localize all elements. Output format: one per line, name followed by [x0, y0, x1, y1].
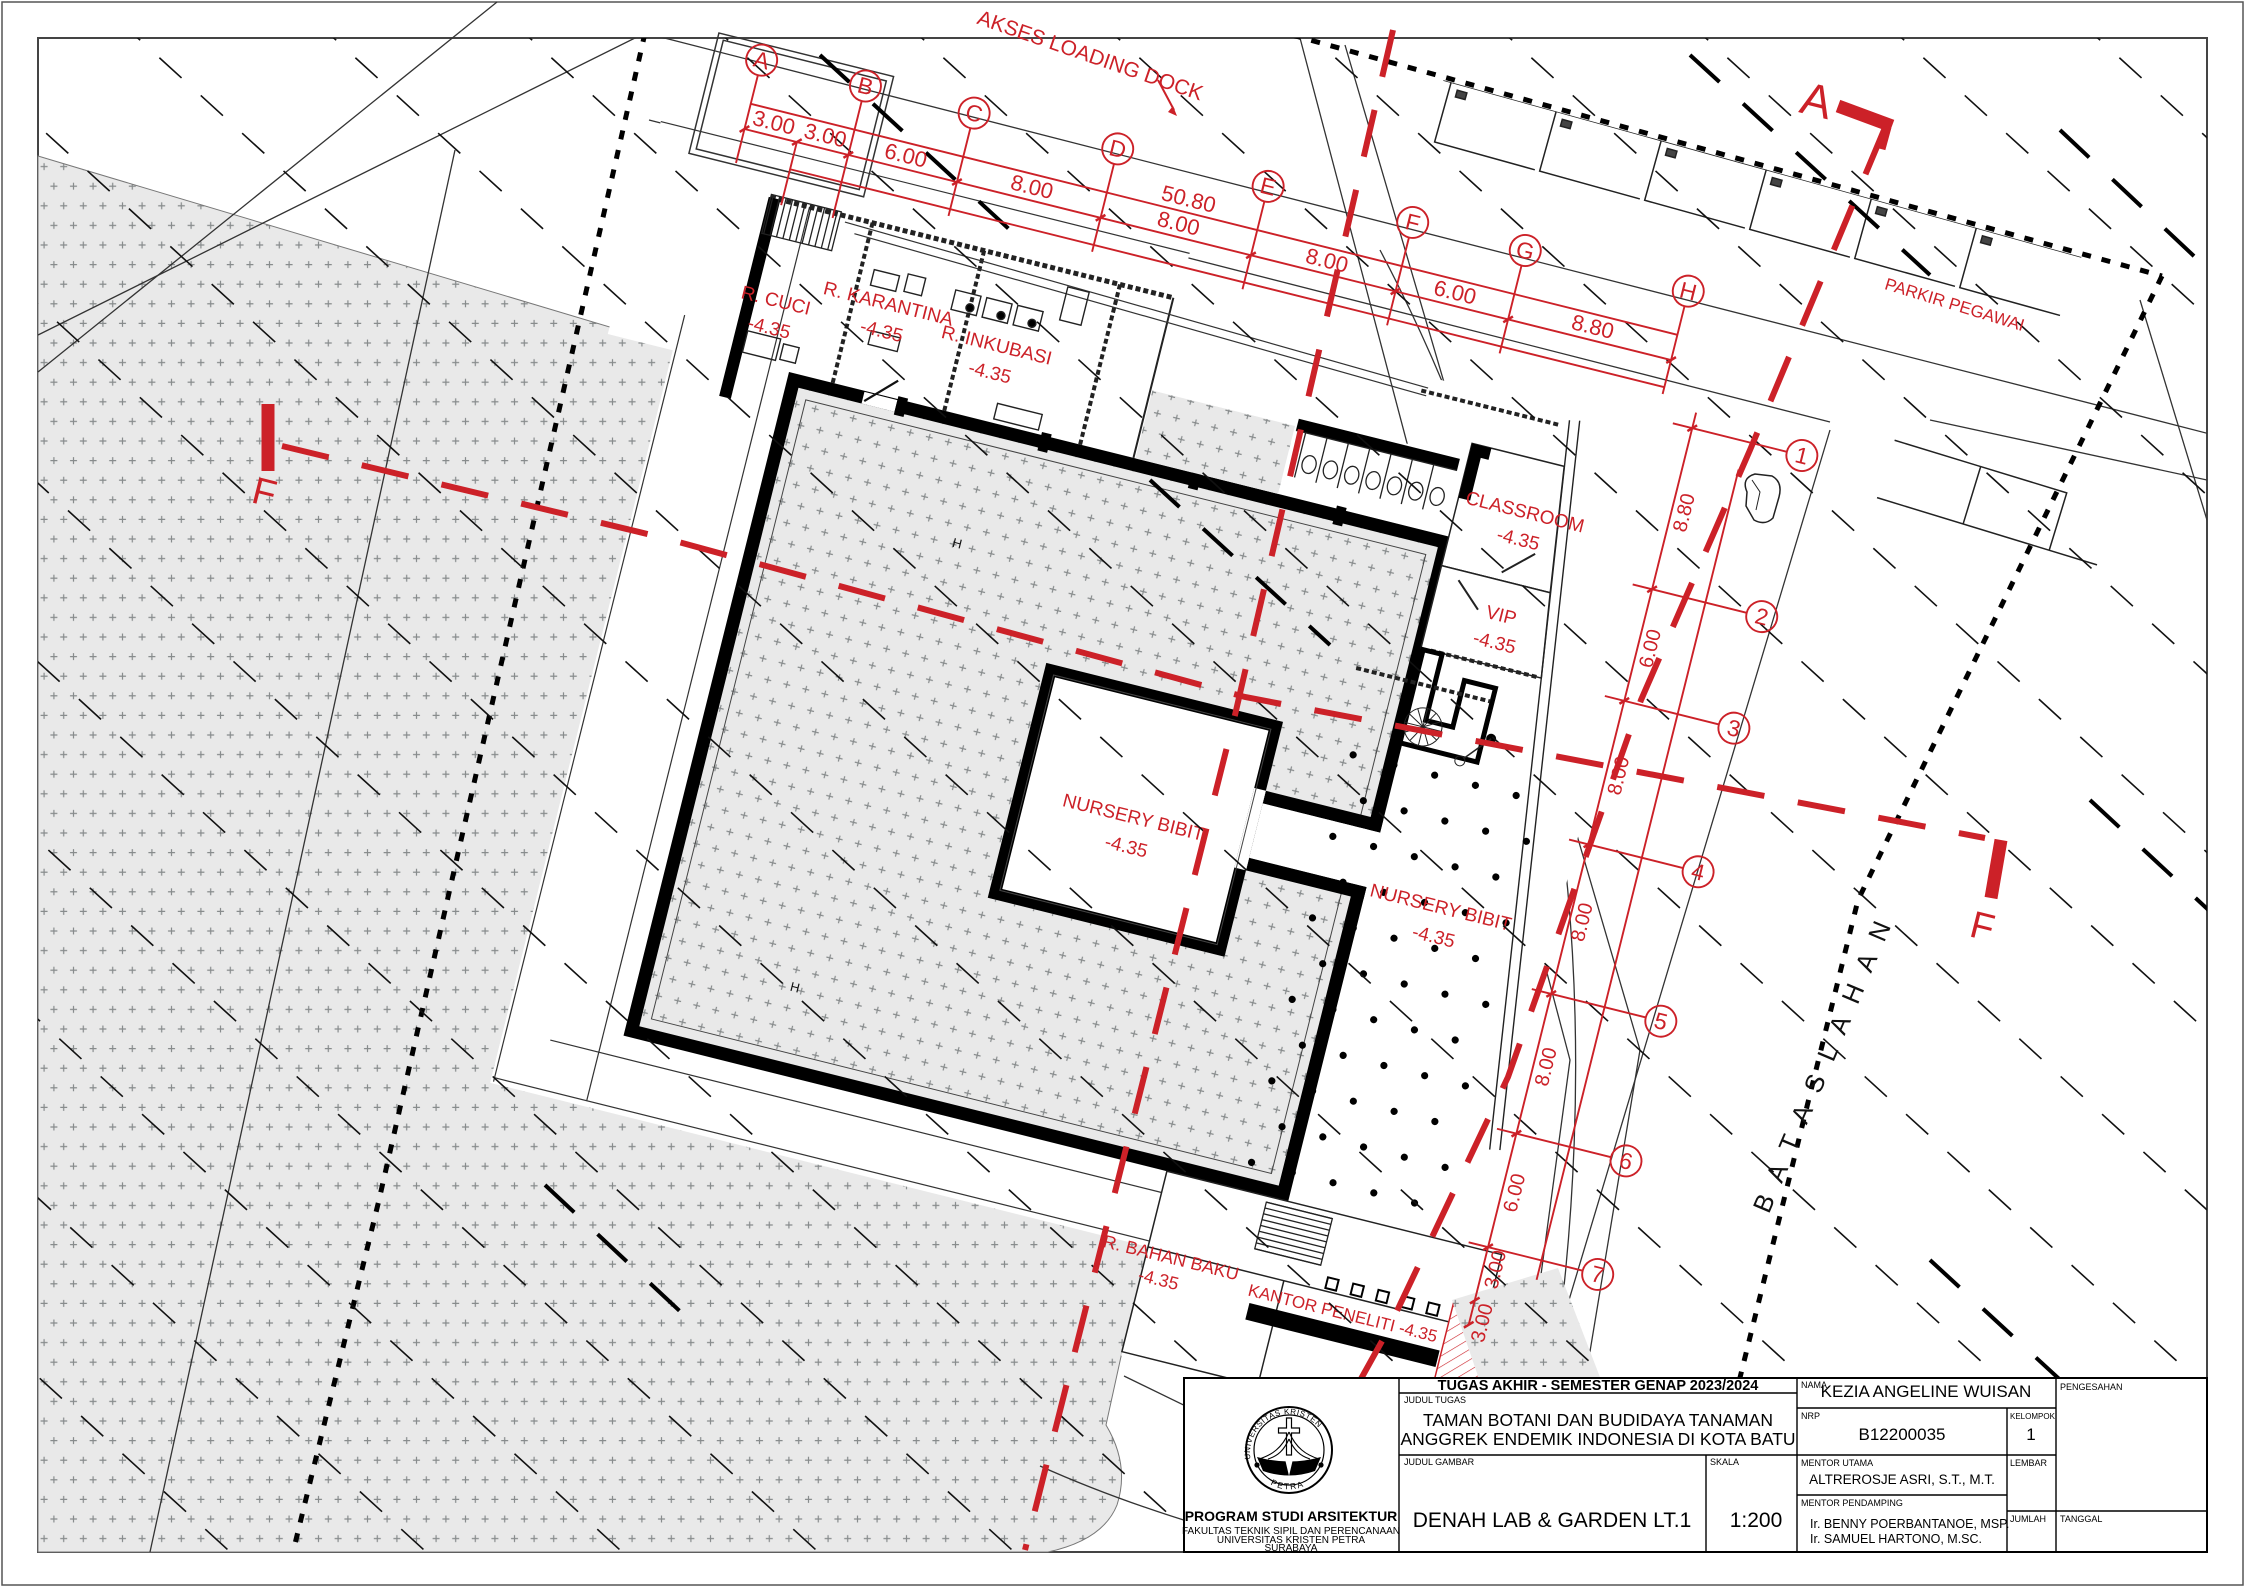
svg-text:B12200035: B12200035 — [1859, 1425, 1946, 1444]
svg-text:PROGRAM STUDI ARSITEKTUR: PROGRAM STUDI ARSITEKTUR — [1185, 1508, 1398, 1524]
svg-text:NRP: NRP — [1801, 1411, 1820, 1421]
svg-text:KEZIA ANGELINE WUISAN: KEZIA ANGELINE WUISAN — [1821, 1382, 2032, 1401]
svg-text:TANGGAL: TANGGAL — [2060, 1514, 2102, 1524]
svg-text:KELOMPOK: KELOMPOK — [2010, 1412, 2056, 1421]
svg-text:DENAH LAB & GARDEN LT.1: DENAH LAB & GARDEN LT.1 — [1413, 1509, 1692, 1532]
svg-text:1: 1 — [2026, 1425, 2035, 1444]
svg-text:TAMAN BOTANI DAN BUDIDAYA TANA: TAMAN BOTANI DAN BUDIDAYA TANAMAN — [1423, 1410, 1773, 1430]
svg-text:TUGAS AKHIR - SEMESTER GENAP 2: TUGAS AKHIR - SEMESTER GENAP 2023/2024 — [1438, 1378, 1759, 1394]
svg-text:Ir. SAMUEL HARTONO, M.SC.: Ir. SAMUEL HARTONO, M.SC. — [1810, 1532, 1982, 1546]
svg-text:ANGGREK ENDEMIK INDONESIA DI K: ANGGREK ENDEMIK INDONESIA DI KOTA BATU — [1400, 1429, 1795, 1449]
svg-text:JUDUL GAMBAR: JUDUL GAMBAR — [1404, 1457, 1475, 1467]
svg-text:SKALA: SKALA — [1710, 1457, 1739, 1467]
svg-text:JUMLAH: JUMLAH — [2010, 1514, 2046, 1524]
svg-text:MENTOR PENDAMPING: MENTOR PENDAMPING — [1801, 1498, 1903, 1508]
svg-text:Ir. BENNY POERBANTANOE, MSP.: Ir. BENNY POERBANTANOE, MSP. — [1810, 1517, 2009, 1531]
svg-text:LEMBAR: LEMBAR — [2010, 1458, 2048, 1468]
svg-text:1:200: 1:200 — [1730, 1509, 1783, 1532]
svg-text:PENGESAHAN: PENGESAHAN — [2060, 1382, 2123, 1392]
svg-text:JUDUL TUGAS: JUDUL TUGAS — [1404, 1395, 1466, 1405]
svg-text:SURABAYA: SURABAYA — [1265, 1543, 1318, 1554]
svg-text:MENTOR UTAMA: MENTOR UTAMA — [1801, 1458, 1873, 1468]
svg-text:ALTREROSJE ASRI, S.T., M.T.: ALTREROSJE ASRI, S.T., M.T. — [1809, 1472, 1995, 1487]
